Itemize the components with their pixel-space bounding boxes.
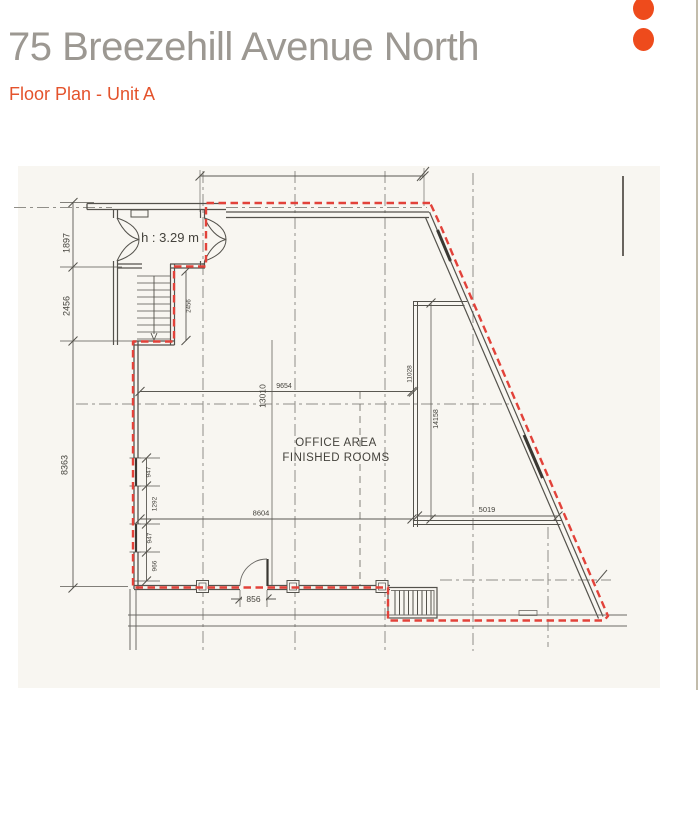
dim-right-wall-upper: 11028 bbox=[407, 365, 414, 383]
dim-right-room-width: 5019 bbox=[479, 505, 496, 514]
dim-left-stairwell: 2456 bbox=[61, 296, 71, 316]
ceiling-height-label: h : 3.29 m bbox=[141, 230, 199, 245]
dim-pier-mid: 1292 bbox=[152, 496, 159, 511]
office-area-label-line1: OFFICE AREA bbox=[295, 437, 377, 449]
dim-width-overall: 13010 bbox=[257, 384, 267, 408]
scan-background bbox=[18, 166, 660, 688]
office-area-label-line2: FINISHED ROOMS bbox=[282, 452, 389, 464]
dim-width-upper: 9654 bbox=[276, 383, 292, 390]
dim-left-upper: 1897 bbox=[61, 233, 71, 253]
dim-left-main: 8363 bbox=[59, 455, 69, 475]
floor-plan-drawing: h : 3.29 m OFFICE AREA FINISHED ROOMS 18… bbox=[0, 0, 699, 813]
dim-stair-run: 2456 bbox=[187, 299, 193, 313]
dim-base-segment: 966 bbox=[152, 560, 159, 571]
dim-window-lower: 947 bbox=[147, 532, 154, 543]
dim-right-room-depth: 14158 bbox=[433, 409, 440, 429]
dim-window-upper: 947 bbox=[146, 466, 153, 477]
dim-width-lower: 8604 bbox=[253, 509, 270, 518]
dim-door-opening: 856 bbox=[246, 594, 260, 604]
